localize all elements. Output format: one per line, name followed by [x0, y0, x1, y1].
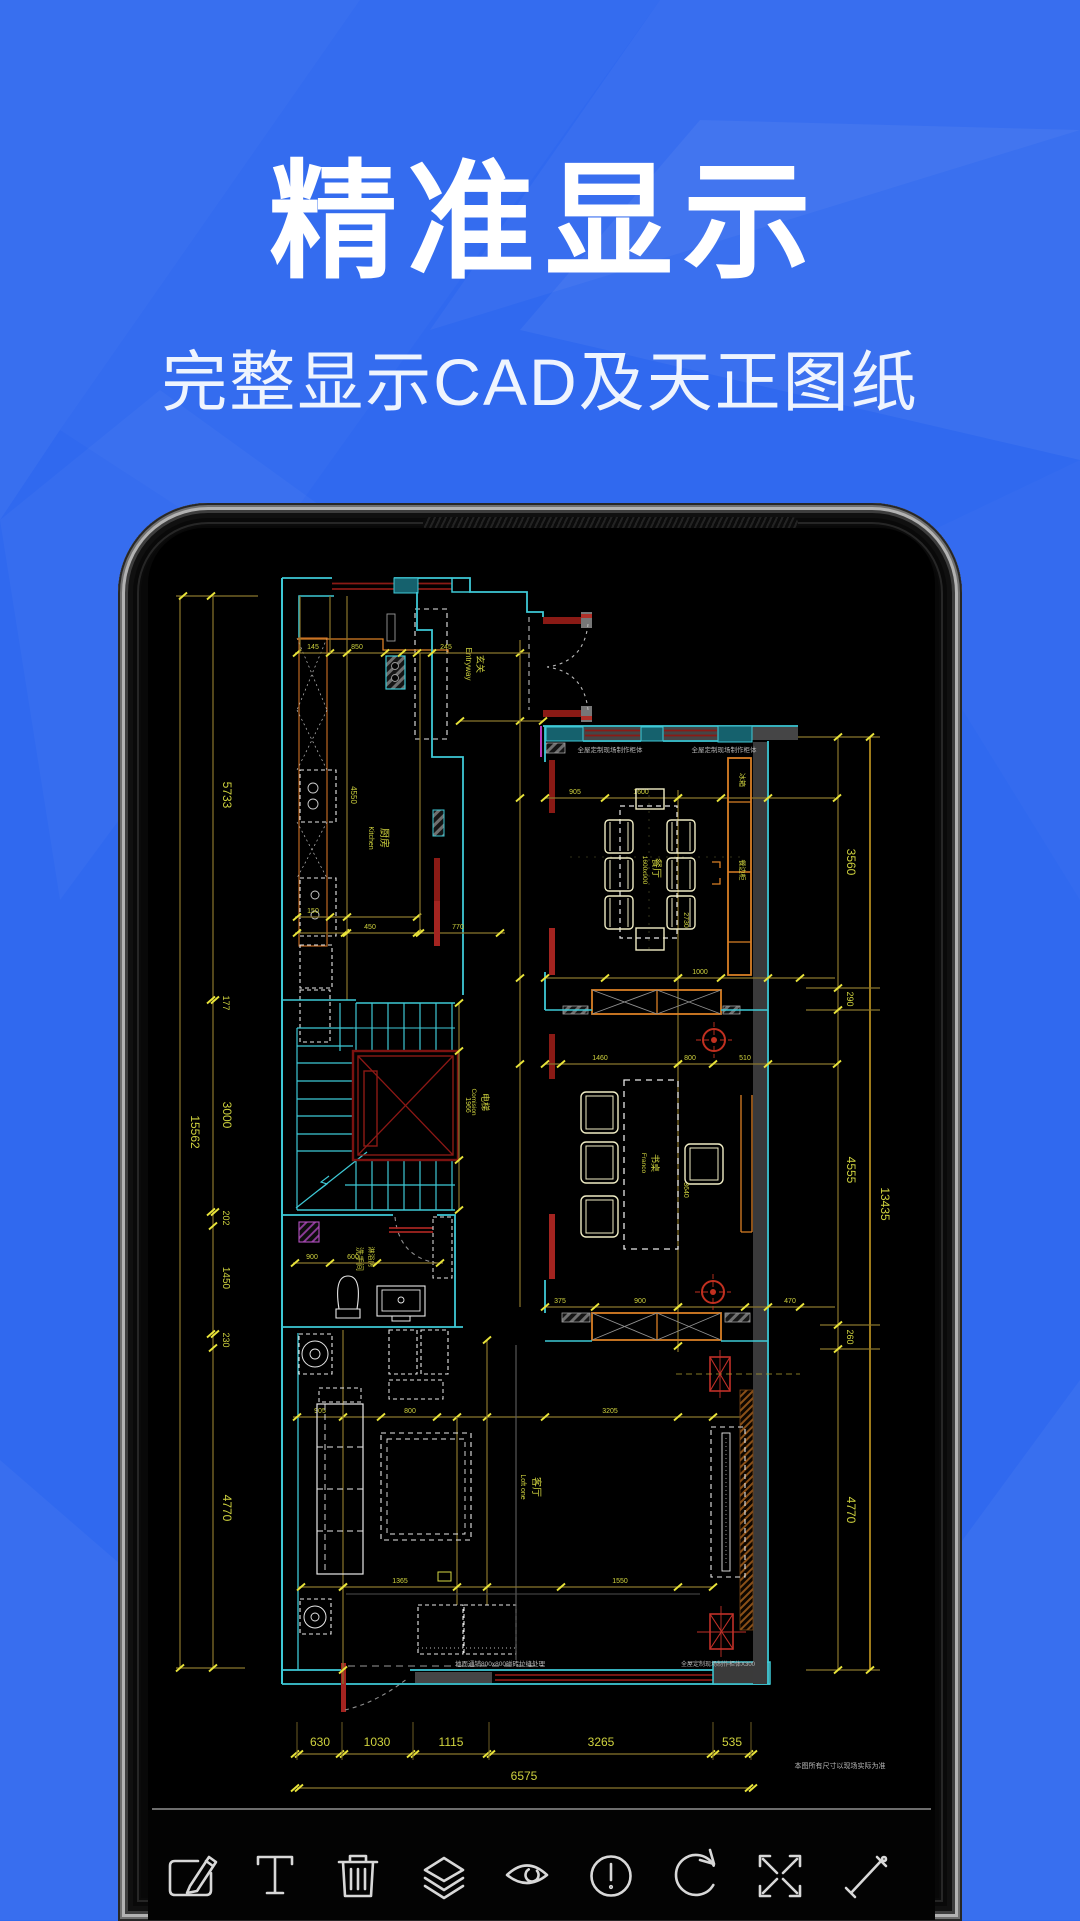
svg-text:535: 535 [722, 1735, 742, 1749]
svg-text:Franco: Franco [640, 1153, 647, 1174]
svg-text:900: 900 [634, 1298, 646, 1305]
svg-text:1450: 1450 [220, 1267, 231, 1290]
svg-text:客厅: 客厅 [530, 1477, 543, 1497]
svg-text:5733: 5733 [220, 782, 234, 809]
svg-text:Loft one: Loft one [519, 1474, 526, 1499]
svg-text:1115: 1115 [439, 1735, 464, 1749]
svg-text:餐厅: 餐厅 [650, 858, 663, 878]
svg-text:2730: 2730 [682, 912, 689, 928]
svg-text:书桌: 书桌 [650, 1154, 661, 1172]
svg-text:Kitchen: Kitchen [367, 826, 374, 849]
svg-text:全屋定制现场制作柜体X300: 全屋定制现场制作柜体X300 [681, 1660, 756, 1668]
svg-text:3560: 3560 [844, 849, 858, 876]
svg-text:15562: 15562 [188, 1115, 202, 1149]
svg-text:1966: 1966 [464, 1097, 471, 1113]
svg-text:1550: 1550 [612, 1578, 628, 1585]
svg-text:260: 260 [845, 1329, 855, 1344]
svg-text:1000: 1000 [692, 969, 708, 976]
svg-text:600: 600 [347, 1254, 359, 1261]
svg-text:850: 850 [351, 644, 363, 651]
svg-text:800: 800 [684, 1055, 696, 1062]
svg-text:厨房: 厨房 [378, 828, 391, 848]
svg-text:电梯: 电梯 [480, 1093, 491, 1111]
svg-text:全屋定制现场制作柜体: 全屋定制现场制作柜体 [692, 745, 758, 754]
svg-text:290: 290 [845, 991, 855, 1006]
svg-text:地面通铺800x800磁砖拉缝处理: 地面通铺800x800磁砖拉缝处理 [455, 1659, 545, 1668]
svg-text:3205: 3205 [602, 1408, 618, 1415]
svg-text:4555: 4555 [844, 1157, 858, 1184]
svg-text:630: 630 [310, 1735, 330, 1749]
svg-text:145: 145 [307, 644, 319, 651]
svg-text:3640: 3640 [682, 1182, 689, 1198]
svg-text:4770: 4770 [220, 1495, 234, 1522]
svg-text:375: 375 [554, 1298, 566, 1305]
svg-text:510: 510 [739, 1055, 751, 1062]
svg-text:150: 150 [307, 908, 319, 915]
svg-text:770: 770 [452, 924, 464, 931]
svg-text:1600x900: 1600x900 [641, 856, 648, 885]
svg-text:1365: 1365 [392, 1578, 408, 1585]
svg-text:6575: 6575 [511, 1769, 538, 1783]
svg-text:470: 470 [784, 1298, 796, 1305]
svg-text:4770: 4770 [844, 1497, 858, 1524]
svg-text:1460: 1460 [592, 1055, 608, 1062]
svg-text:245: 245 [440, 644, 452, 651]
svg-text:900: 900 [306, 1254, 318, 1261]
svg-text:230: 230 [221, 1332, 231, 1347]
svg-text:905: 905 [569, 789, 581, 796]
svg-text:177: 177 [221, 995, 231, 1010]
svg-text:玄关: 玄关 [475, 655, 486, 673]
svg-text:905: 905 [314, 1408, 326, 1415]
svg-text:冰箱: 冰箱 [738, 773, 747, 787]
svg-text:450: 450 [364, 924, 376, 931]
svg-text:3265: 3265 [588, 1735, 615, 1749]
svg-text:13435: 13435 [878, 1187, 892, 1221]
svg-text:1030: 1030 [364, 1735, 391, 1749]
svg-text:本图所有尺寸以现场实际为准: 本图所有尺寸以现场实际为准 [795, 1761, 886, 1770]
svg-text:800: 800 [404, 1408, 416, 1415]
svg-text:4550: 4550 [349, 786, 358, 804]
svg-text:全屋定制现场制作柜体: 全屋定制现场制作柜体 [578, 745, 644, 754]
svg-text:3000: 3000 [220, 1102, 234, 1129]
svg-text:202: 202 [221, 1210, 231, 1225]
svg-text:餐边柜: 餐边柜 [738, 860, 747, 881]
